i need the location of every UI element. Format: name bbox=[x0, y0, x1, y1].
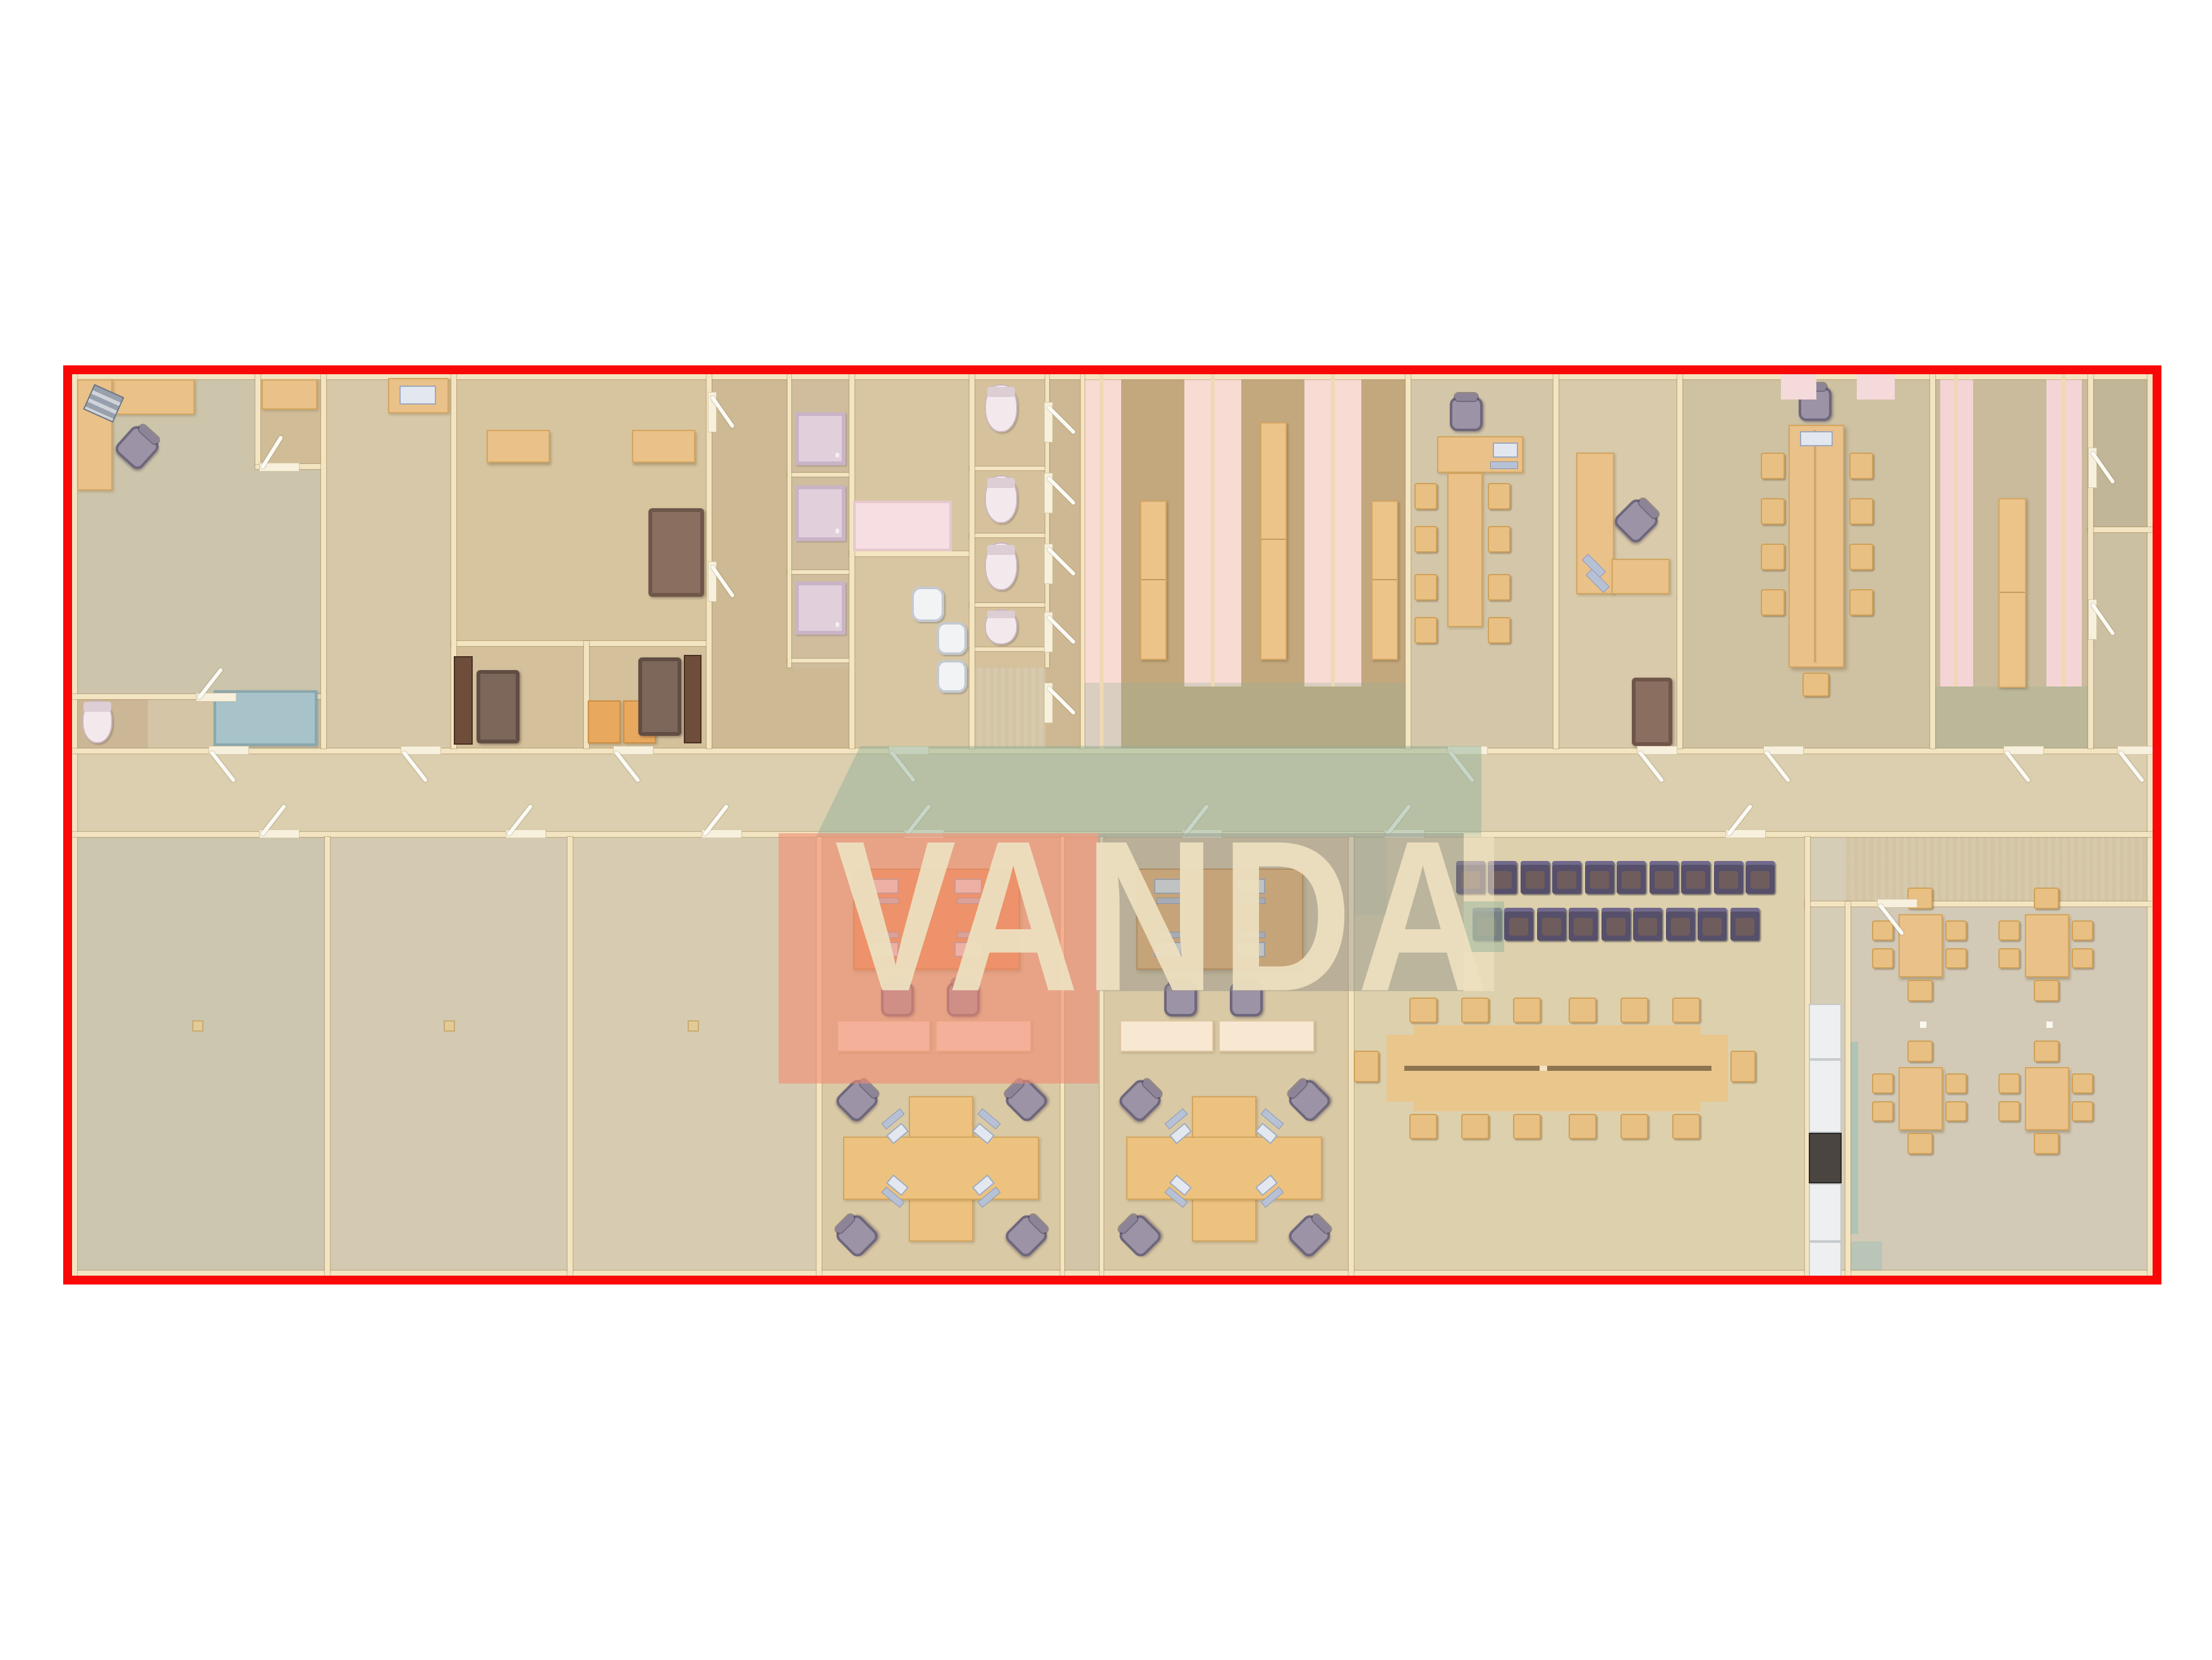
meeting-table bbox=[1789, 425, 1844, 668]
dining-chair bbox=[1998, 948, 2020, 968]
dining-chair bbox=[2034, 1041, 2059, 1062]
armchair bbox=[1730, 908, 1759, 941]
armchair bbox=[1681, 861, 1710, 894]
dining-chair bbox=[1907, 980, 1933, 1001]
wall bbox=[2088, 527, 2153, 532]
loveseat-1 bbox=[477, 670, 520, 743]
task-chair bbox=[881, 982, 914, 1016]
locker-bench-3 bbox=[1371, 501, 1398, 660]
floor-spec bbox=[2046, 1022, 2053, 1028]
dining-table bbox=[1899, 914, 1943, 977]
storage-bench bbox=[1998, 498, 2026, 688]
conf-chair bbox=[1569, 998, 1596, 1023]
wall bbox=[849, 551, 969, 556]
conf-chair-end bbox=[1354, 1051, 1379, 1082]
room-empty-room-3 bbox=[568, 837, 817, 1285]
wall bbox=[1553, 374, 1559, 748]
wall bbox=[1100, 837, 1103, 1285]
conf-chair bbox=[1461, 1114, 1489, 1139]
meeting-chair bbox=[1761, 453, 1785, 479]
dining-table bbox=[1899, 1067, 1943, 1130]
meeting-chair bbox=[1761, 544, 1785, 570]
wall bbox=[1349, 837, 1354, 1285]
dining-chair bbox=[1998, 1101, 2020, 1121]
wall bbox=[969, 374, 975, 748]
kitchen-unit bbox=[1809, 1004, 1842, 1059]
keyboard bbox=[1240, 898, 1265, 904]
wall bbox=[969, 467, 1045, 470]
dining-chair bbox=[1872, 1073, 1893, 1094]
armchair bbox=[1746, 861, 1775, 894]
conf-chair bbox=[1672, 998, 1700, 1023]
locker-bench-1 bbox=[1140, 501, 1167, 660]
toilet-4 bbox=[985, 609, 1018, 645]
conf-chair bbox=[1409, 998, 1437, 1023]
armchair bbox=[1569, 908, 1598, 941]
stripe-divider bbox=[2062, 374, 2065, 687]
credenza bbox=[1120, 1020, 1213, 1052]
room-empty-room-2 bbox=[325, 837, 568, 1285]
stripe-divider bbox=[1954, 374, 1958, 687]
room-room-ne-upper bbox=[2088, 374, 2153, 527]
pinwheel-desk-h bbox=[843, 1137, 1039, 1200]
keyboard bbox=[1240, 932, 1265, 938]
dining-table bbox=[2025, 1067, 2069, 1130]
wall bbox=[1060, 837, 1064, 1285]
dining-chair bbox=[2034, 888, 2059, 909]
floorplan-layers bbox=[72, 374, 2153, 1276]
meeting-chair bbox=[1849, 453, 1873, 479]
wall bbox=[72, 374, 2153, 379]
meeting-chair-end bbox=[1802, 673, 1829, 697]
wall bbox=[1406, 374, 1411, 748]
wall bbox=[72, 748, 2153, 754]
pinwheel-desk-h bbox=[1126, 1137, 1322, 1200]
wall bbox=[1930, 374, 1935, 748]
credenza bbox=[1218, 1020, 1315, 1052]
toilet-2 bbox=[985, 475, 1018, 523]
room-room-ne-lower bbox=[2088, 527, 2153, 748]
dining-chair bbox=[1998, 1073, 2020, 1094]
sub-toilet bbox=[82, 700, 112, 743]
guest-chair bbox=[1414, 526, 1437, 552]
wall bbox=[1081, 374, 1085, 748]
wall bbox=[849, 374, 854, 748]
armchair bbox=[1473, 908, 1502, 941]
dining-chair bbox=[1945, 948, 1967, 968]
task-chair bbox=[1230, 982, 1263, 1016]
guest-chair bbox=[1414, 483, 1437, 510]
armchair bbox=[1698, 908, 1727, 941]
guest-chair bbox=[1488, 617, 1510, 644]
dining-chair bbox=[1872, 920, 1893, 941]
wall bbox=[787, 659, 849, 662]
armchair bbox=[1521, 861, 1550, 894]
guest-chair bbox=[1414, 574, 1437, 601]
armchair bbox=[1504, 908, 1533, 941]
armchair bbox=[1617, 861, 1646, 894]
column bbox=[193, 1022, 202, 1030]
locker-bench-2 bbox=[1260, 422, 1287, 660]
lounge-table-1 bbox=[487, 430, 550, 463]
bookcase-1 bbox=[454, 656, 473, 745]
fridge bbox=[1809, 1059, 1842, 1133]
monitor bbox=[1237, 879, 1265, 894]
armchair bbox=[1537, 908, 1566, 941]
armchair bbox=[1601, 908, 1631, 941]
dining-chair bbox=[1945, 1101, 1967, 1121]
conf-chair bbox=[1513, 1114, 1541, 1139]
guest-chair bbox=[1488, 483, 1510, 510]
credenza bbox=[837, 1020, 930, 1052]
dining-chair bbox=[2034, 1133, 2059, 1154]
stripe-divider bbox=[1331, 374, 1335, 687]
floorplan-render: VANDA bbox=[0, 0, 2212, 1660]
meeting-chair bbox=[1849, 589, 1873, 616]
floor-spec bbox=[1920, 1022, 1926, 1028]
sink-1 bbox=[937, 622, 967, 655]
wall bbox=[72, 374, 77, 1276]
dining-table bbox=[2025, 914, 2069, 977]
meeting-monitor bbox=[1800, 431, 1833, 446]
stove bbox=[1809, 1133, 1842, 1183]
dining-chair bbox=[2072, 1101, 2093, 1121]
monitor bbox=[1154, 942, 1182, 957]
shower-tray-2 bbox=[795, 485, 846, 541]
room-office-b bbox=[321, 374, 451, 748]
keyboard bbox=[957, 898, 982, 904]
conf-chair bbox=[1461, 998, 1489, 1023]
dining-chair bbox=[1872, 1101, 1893, 1121]
wall bbox=[568, 837, 573, 1285]
task-chair bbox=[1164, 982, 1197, 1016]
stripe-divider bbox=[1211, 374, 1215, 687]
conf-chair bbox=[1620, 998, 1648, 1023]
wall bbox=[1677, 374, 1682, 748]
conference-table bbox=[1387, 1025, 1728, 1111]
guest-chair bbox=[1488, 574, 1510, 601]
wall bbox=[2088, 374, 2093, 748]
wall bbox=[451, 641, 707, 646]
dining-chair bbox=[1907, 1041, 1933, 1062]
dining-chair bbox=[1872, 948, 1893, 968]
wall bbox=[969, 603, 1045, 607]
loveseat-2 bbox=[638, 657, 681, 736]
dining-chair bbox=[1907, 1133, 1933, 1154]
armchair bbox=[1552, 861, 1581, 894]
conf-chair bbox=[1569, 1114, 1596, 1139]
wall bbox=[787, 473, 849, 477]
dining-chair bbox=[1945, 1073, 1967, 1094]
wall bbox=[2148, 374, 2153, 1276]
room-empty-room-1 bbox=[72, 837, 325, 1285]
dining-chair bbox=[2072, 948, 2093, 968]
monitor bbox=[954, 942, 982, 957]
office-sofa bbox=[1632, 678, 1672, 746]
wall bbox=[321, 374, 326, 748]
monitor bbox=[1237, 942, 1265, 957]
task-chair bbox=[947, 982, 980, 1016]
keyboard bbox=[1157, 898, 1182, 904]
keyboard bbox=[1157, 932, 1182, 938]
column bbox=[689, 1022, 698, 1030]
coffee-table-orange-1 bbox=[588, 700, 621, 743]
keyboard bbox=[873, 932, 899, 938]
dining-chair bbox=[2034, 980, 2059, 1001]
wall bbox=[787, 374, 791, 668]
toilet-1 bbox=[985, 384, 1018, 432]
armchair bbox=[1714, 861, 1743, 894]
conf-chair bbox=[1409, 1114, 1437, 1139]
wall bbox=[72, 832, 2153, 837]
keyboard bbox=[957, 932, 982, 938]
doormat-2 bbox=[1857, 374, 1895, 400]
wall bbox=[969, 647, 1045, 651]
conf-chair bbox=[1620, 1114, 1648, 1139]
armchair bbox=[1456, 861, 1485, 894]
wall bbox=[255, 374, 260, 464]
column bbox=[445, 1022, 454, 1030]
wall bbox=[787, 570, 849, 574]
wall bbox=[1805, 901, 2153, 906]
conf-chair bbox=[1672, 1114, 1700, 1139]
meeting-chair bbox=[1761, 589, 1785, 616]
conf-chair-end bbox=[1730, 1051, 1756, 1082]
sink-2 bbox=[937, 660, 967, 693]
wall bbox=[969, 534, 1045, 537]
kitchen-unit bbox=[1809, 1242, 1842, 1285]
monitor bbox=[871, 942, 899, 957]
t-desk-monitor bbox=[1493, 442, 1518, 458]
monitor bbox=[954, 879, 982, 894]
wash-sink bbox=[911, 587, 944, 622]
dining-chair bbox=[2072, 920, 2093, 941]
shower-tray-1 bbox=[795, 412, 846, 465]
t-desk-chair bbox=[1450, 397, 1483, 431]
lounge-table-2 bbox=[632, 430, 695, 463]
t-desk-stem bbox=[1447, 473, 1483, 627]
doormat-1 bbox=[1781, 374, 1816, 400]
wall bbox=[1845, 901, 1850, 1285]
armchair bbox=[1666, 908, 1695, 941]
floorplan: VANDA bbox=[63, 365, 2161, 1285]
kitchen-unit bbox=[1809, 1183, 1842, 1242]
armchair bbox=[1585, 861, 1614, 894]
credenza bbox=[935, 1020, 1031, 1052]
wall bbox=[817, 837, 822, 1285]
stripe-divider bbox=[1100, 374, 1103, 748]
wall bbox=[325, 837, 330, 1285]
meeting-chair bbox=[1849, 544, 1873, 570]
keyboard bbox=[873, 898, 899, 904]
guest-chair bbox=[1414, 617, 1437, 644]
closet-cabinet bbox=[262, 379, 317, 410]
room-lounge bbox=[451, 374, 707, 641]
dining-chair bbox=[1945, 920, 1967, 941]
meeting-chair bbox=[1849, 498, 1873, 525]
dining-chair bbox=[2072, 1073, 2093, 1094]
dining-chair bbox=[1998, 920, 2020, 941]
shower-tray-3 bbox=[795, 582, 846, 635]
room-corridor bbox=[72, 748, 2153, 837]
monitor bbox=[871, 879, 899, 894]
bookcase-2 bbox=[684, 655, 702, 743]
bath-slab bbox=[853, 501, 952, 551]
room-office-gap bbox=[1060, 837, 1100, 1285]
guest-chair bbox=[1488, 526, 1510, 552]
reception-monitor bbox=[399, 386, 436, 405]
l-desk-arm bbox=[1612, 559, 1670, 594]
lounge-sofa bbox=[648, 508, 704, 597]
armchair bbox=[1650, 861, 1679, 894]
armchair bbox=[1488, 861, 1517, 894]
conf-chair bbox=[1513, 998, 1541, 1023]
armchair bbox=[1633, 908, 1662, 941]
t-desk-keyboard bbox=[1490, 461, 1518, 469]
meeting-chair bbox=[1761, 498, 1785, 525]
monitor bbox=[1154, 879, 1182, 894]
toilet-3 bbox=[985, 542, 1018, 590]
